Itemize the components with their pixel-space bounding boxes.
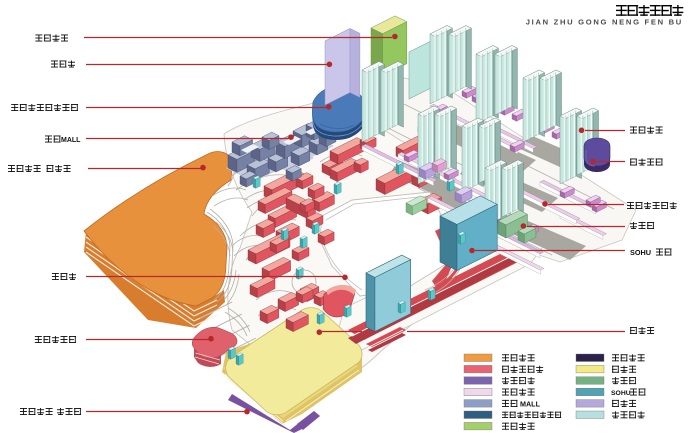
svg-text:MALL: MALL — [61, 137, 81, 144]
svg-text:SOHU: SOHU — [611, 390, 631, 397]
svg-text:SOHU: SOHU — [630, 248, 651, 257]
svg-text:JIAN ZHU GONG NENG FEN BU: JIAN ZHU GONG NENG FEN BU — [526, 18, 683, 27]
svg-text:MALL: MALL — [520, 400, 541, 409]
